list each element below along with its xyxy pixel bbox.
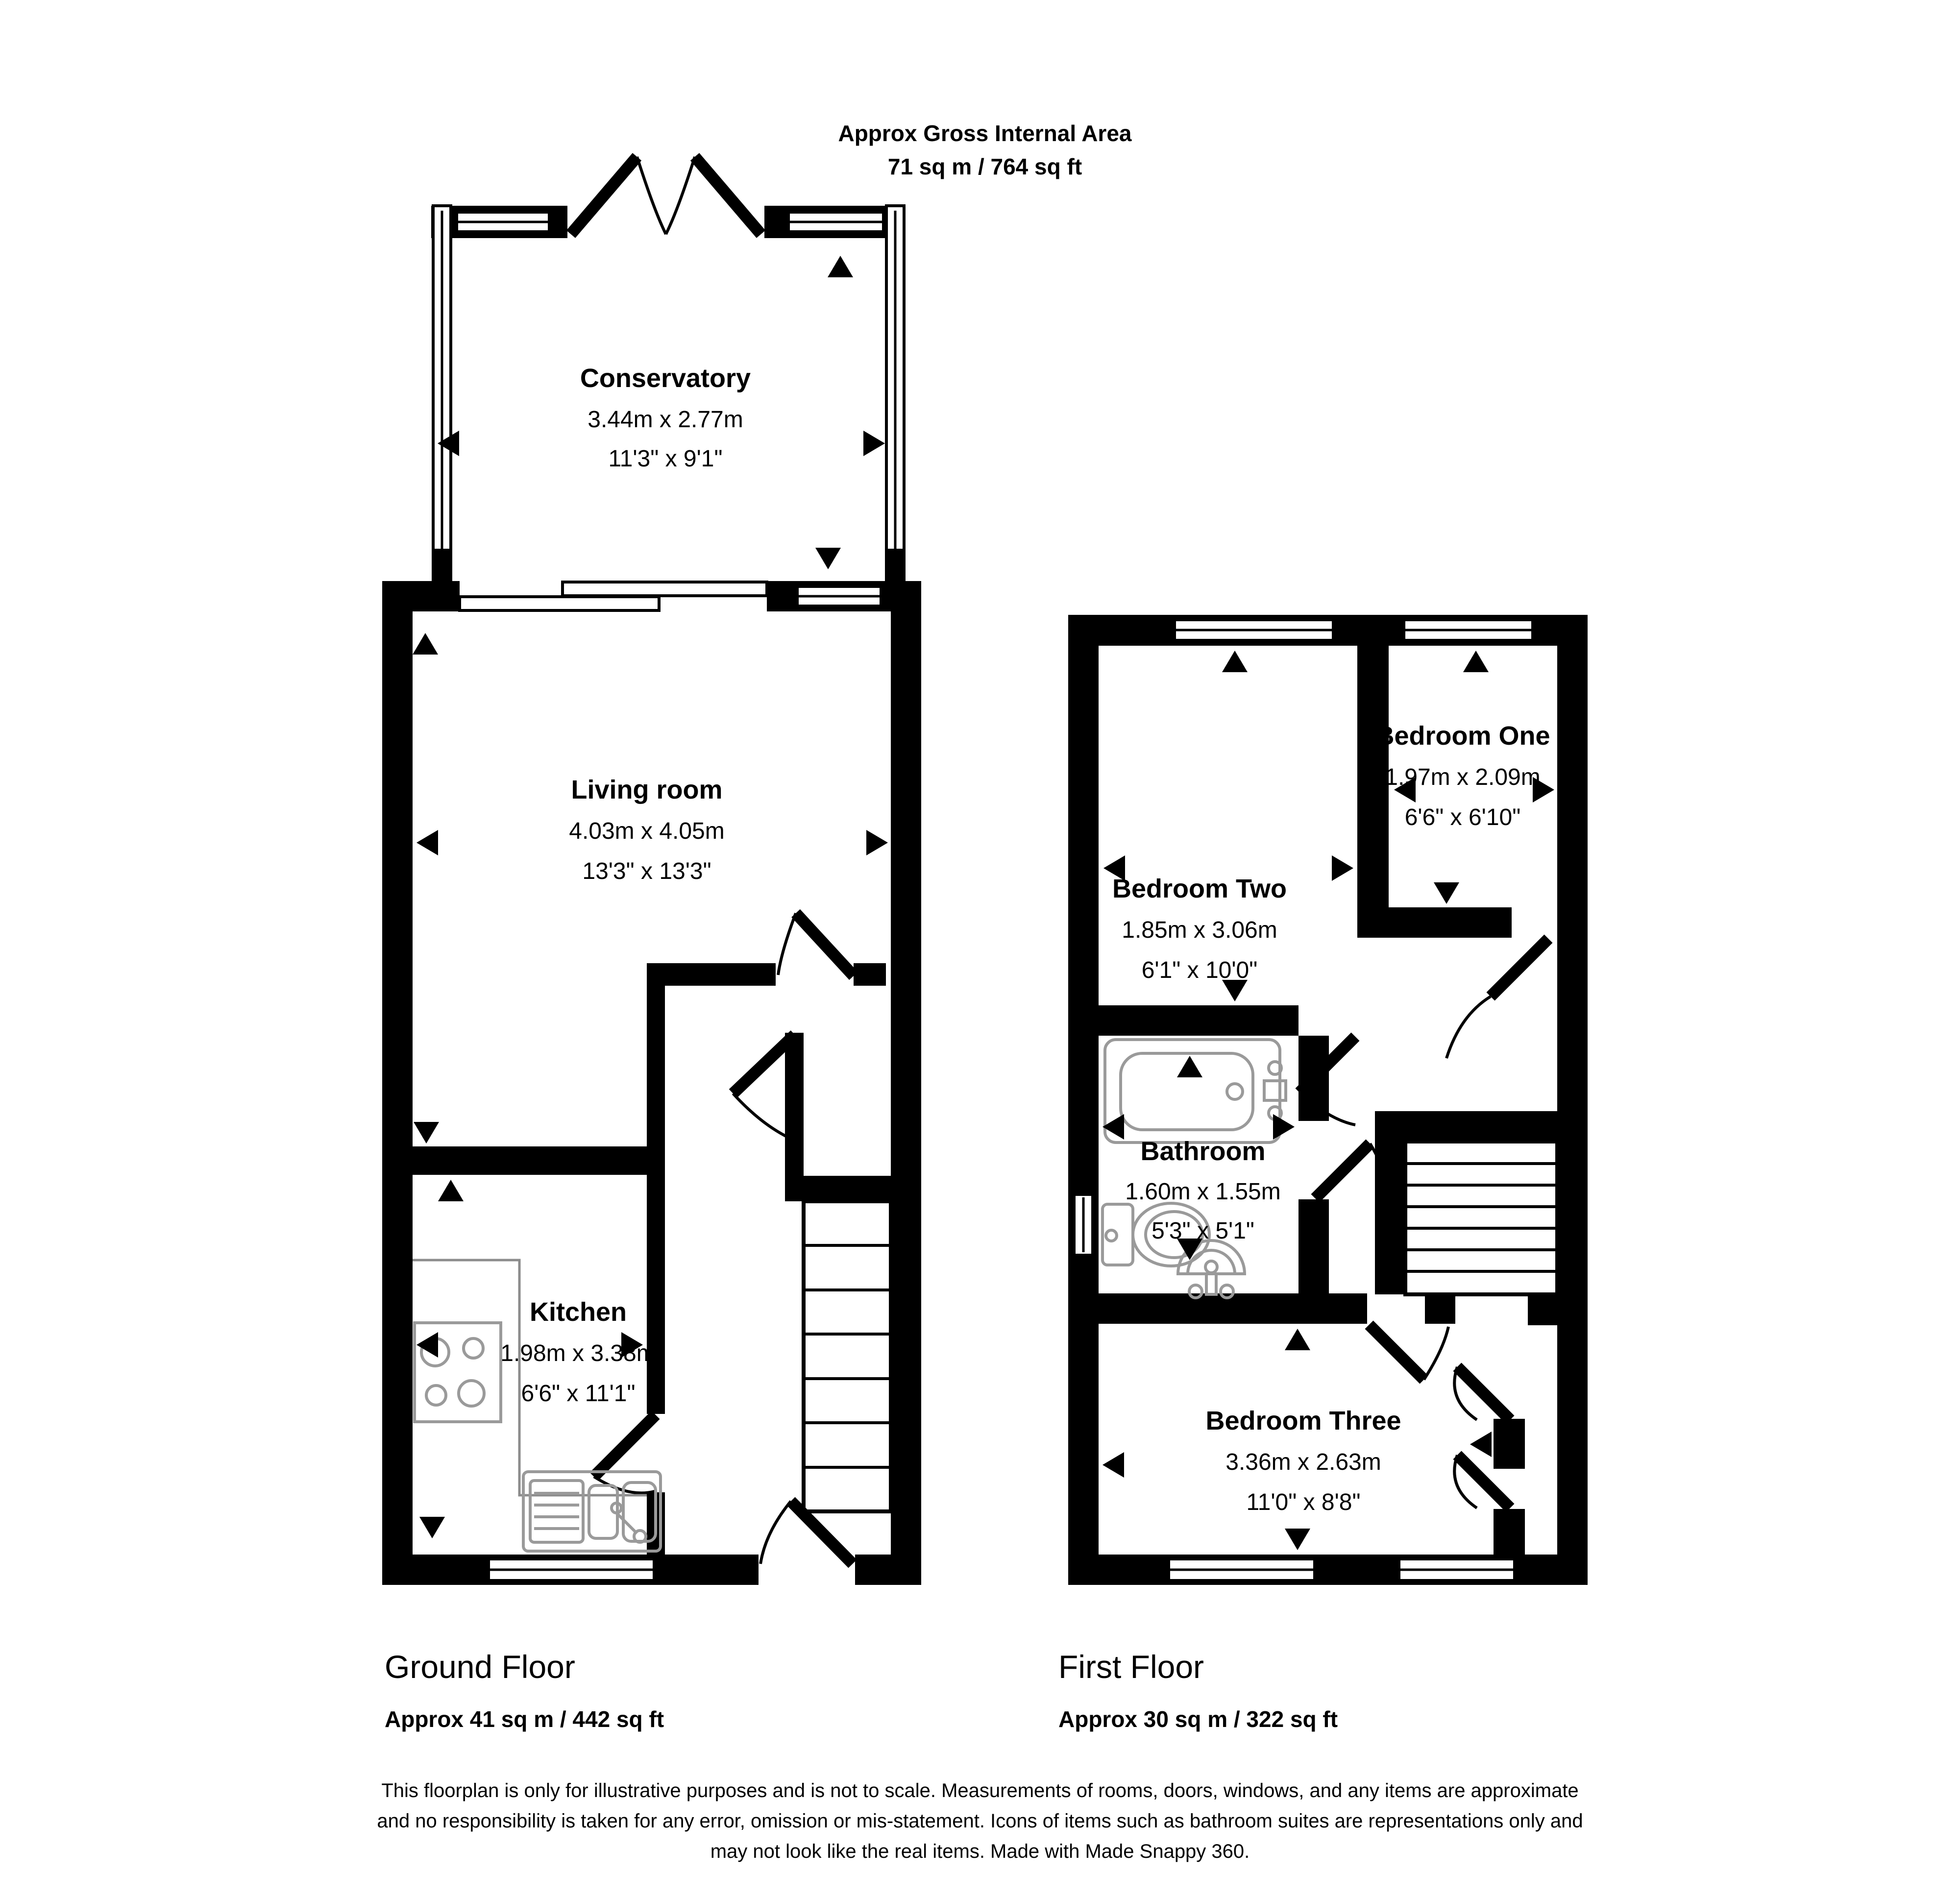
disclaimer-line3: may not look like the real items. Made w… xyxy=(710,1841,1250,1862)
room-name: Bedroom One xyxy=(1375,721,1550,751)
measure-arrow-up xyxy=(413,633,438,655)
measure-arrow-down xyxy=(419,1517,445,1538)
wall xyxy=(1099,1005,1298,1036)
measure-arrow-up xyxy=(1222,651,1248,672)
door-leaf xyxy=(571,157,637,234)
wall xyxy=(1557,615,1588,1585)
door-swing xyxy=(760,1501,791,1564)
measure-arrow-down xyxy=(414,1122,439,1143)
room-metric: 1.85m x 3.06m xyxy=(1122,917,1277,943)
room-metric: 1.60m x 1.55m xyxy=(1125,1179,1280,1205)
floor-area: Approx 41 sq m / 442 sq ft xyxy=(385,1706,664,1732)
sink-icon xyxy=(523,1472,661,1551)
toilet-button xyxy=(1106,1230,1117,1241)
wall xyxy=(886,549,904,581)
room-metric: 1.98m x 3.38m xyxy=(500,1340,656,1366)
disclaimer-line2: and no responsibility is taken for any e… xyxy=(377,1810,1583,1832)
measure-arrow-left xyxy=(416,1332,438,1358)
sink-drainer xyxy=(530,1481,583,1542)
hob-ring xyxy=(426,1386,446,1405)
room-metric: 3.44m x 2.77m xyxy=(588,407,743,433)
wall xyxy=(1357,907,1512,938)
door-swing xyxy=(666,157,695,234)
ground-floor-plan: Conservatory 3.44m x 2.77m 11'3" x 9'1" … xyxy=(382,157,921,1585)
conservatory-label: Conservatory 3.44m x 2.77m 11'3" x 9'1" xyxy=(580,364,751,472)
door-swing xyxy=(1446,997,1491,1058)
room-name: Bedroom Three xyxy=(1205,1406,1401,1435)
title-line2: 71 sq m / 764 sq ft xyxy=(888,154,1082,179)
wall xyxy=(1099,1293,1367,1324)
wall xyxy=(433,549,451,581)
door-leaf xyxy=(796,913,854,976)
hob-ring xyxy=(464,1338,483,1358)
sink-tap-spout xyxy=(616,1513,637,1533)
bath-drain xyxy=(1227,1084,1243,1099)
measure-arrow-down xyxy=(1285,1529,1310,1550)
room-name: Bedroom Two xyxy=(1112,874,1287,903)
sliding-door-panel xyxy=(563,582,767,596)
first-floor-plan: Bedroom Two 1.85m x 3.06m 6'1" x 10'0" B… xyxy=(1068,615,1588,1585)
door-swing xyxy=(1424,1327,1448,1380)
door-leaf xyxy=(695,157,761,234)
measure-arrow-up xyxy=(828,256,853,277)
basin-tap xyxy=(1206,1274,1216,1294)
room-imperial: 6'6" x 11'1" xyxy=(521,1381,636,1407)
wall xyxy=(647,963,776,986)
door-leaf xyxy=(594,1415,656,1477)
measure-arrow-right xyxy=(866,830,888,855)
bath-tap xyxy=(1264,1081,1286,1100)
door-leaf xyxy=(1491,939,1548,997)
bathtub-icon xyxy=(1105,1040,1286,1142)
room-metric: 3.36m x 2.63m xyxy=(1225,1449,1381,1475)
wall xyxy=(382,581,413,1585)
wall xyxy=(785,1033,804,1176)
room-name: Bathroom xyxy=(1141,1137,1266,1166)
room-metric: 1.97m x 2.09m xyxy=(1385,764,1540,790)
wall xyxy=(1494,1509,1525,1555)
wall xyxy=(1357,646,1389,907)
bedroom-two-label: Bedroom Two 1.85m x 3.06m 6'1" x 10'0" xyxy=(1112,874,1287,983)
room-metric: 4.03m x 4.05m xyxy=(569,818,724,844)
bedroom-three-label: Bedroom Three 3.36m x 2.63m 11'0" x 8'8" xyxy=(1205,1406,1401,1515)
bathroom-fixtures xyxy=(1102,1040,1286,1298)
wall xyxy=(413,1146,647,1175)
measure-arrow-up xyxy=(1177,1056,1202,1077)
room-imperial: 5'3" x 5'1" xyxy=(1151,1218,1254,1244)
wall xyxy=(1425,1293,1455,1324)
wall xyxy=(1298,1199,1329,1294)
room-imperial: 11'0" x 8'8" xyxy=(1247,1489,1361,1515)
door-swing xyxy=(733,1094,793,1140)
hob-ring xyxy=(459,1381,484,1406)
floorplan-page: Approx Gross Internal Area 71 sq m / 764… xyxy=(0,0,1960,1896)
door-leaf xyxy=(1369,1325,1424,1380)
sliding-door-panel xyxy=(460,597,659,610)
room-imperial: 11'3" x 9'1" xyxy=(609,446,723,472)
wall xyxy=(1375,1111,1557,1142)
measure-arrow-up xyxy=(438,1180,464,1201)
measure-arrow-up xyxy=(1285,1329,1310,1350)
first-staircase xyxy=(1405,1142,1557,1294)
door-swing xyxy=(778,913,796,975)
room-name: Living room xyxy=(571,775,723,804)
wall xyxy=(1494,1419,1525,1469)
wall xyxy=(891,581,921,1585)
stair-box xyxy=(804,1201,891,1511)
room-name: Conservatory xyxy=(580,364,751,393)
room-imperial: 6'6" x 6'10" xyxy=(1405,804,1521,830)
ground-staircase xyxy=(804,1201,891,1511)
measure-arrow-right xyxy=(1332,855,1353,881)
disclaimer-line1: This floorplan is only for illustrative … xyxy=(381,1780,1578,1801)
measure-arrow-down xyxy=(815,548,841,569)
kitchen-label: Kitchen 1.98m x 3.38m 6'6" x 11'1" xyxy=(500,1297,656,1407)
bathroom-label: Bathroom 1.60m x 1.55m 5'3" x 5'1" xyxy=(1125,1137,1280,1244)
living-room-label: Living room 4.03m x 4.05m 13'3" x 13'3" xyxy=(569,775,724,884)
floor-area: Approx 30 sq m / 322 sq ft xyxy=(1058,1706,1338,1732)
measure-arrow-left xyxy=(1470,1432,1492,1457)
bedroom-one-label: Bedroom One 1.97m x 2.09m 6'6" x 6'10" xyxy=(1375,721,1550,830)
door-leaf xyxy=(1315,1143,1370,1198)
disclaimer-text: This floorplan is only for illustrative … xyxy=(377,1780,1583,1862)
measure-arrow-left xyxy=(416,830,438,855)
measure-arrow-left xyxy=(1102,1452,1124,1478)
floor-label: Ground Floor xyxy=(385,1649,575,1685)
hob-outline xyxy=(415,1323,501,1422)
measure-arrow-right xyxy=(863,431,885,456)
measure-arrow-right xyxy=(1273,1114,1295,1140)
hob-icon xyxy=(415,1323,501,1422)
french-doors xyxy=(571,157,761,234)
wall xyxy=(854,963,886,986)
first-floor-caption: First Floor Approx 30 sq m / 322 sq ft xyxy=(1058,1649,1338,1732)
floorplan-canvas: Approx Gross Internal Area 71 sq m / 764… xyxy=(0,0,1960,1896)
wall xyxy=(382,581,460,611)
title-line1: Approx Gross Internal Area xyxy=(838,121,1131,146)
measure-arrow-down xyxy=(1434,882,1459,904)
room-name: Kitchen xyxy=(530,1297,627,1327)
wall xyxy=(1068,615,1099,1585)
gross-internal-area-title: Approx Gross Internal Area 71 sq m / 764… xyxy=(838,121,1131,179)
basin-drain xyxy=(1205,1261,1217,1273)
measure-arrow-up xyxy=(1463,651,1489,672)
floor-label: First Floor xyxy=(1058,1649,1204,1685)
room-imperial: 13'3" x 13'3" xyxy=(582,858,711,884)
wall xyxy=(785,1176,891,1201)
door-swing xyxy=(637,157,666,234)
room-imperial: 6'1" x 10'0" xyxy=(1142,957,1258,983)
ground-floor-caption: Ground Floor Approx 41 sq m / 442 sq ft xyxy=(385,1649,664,1732)
